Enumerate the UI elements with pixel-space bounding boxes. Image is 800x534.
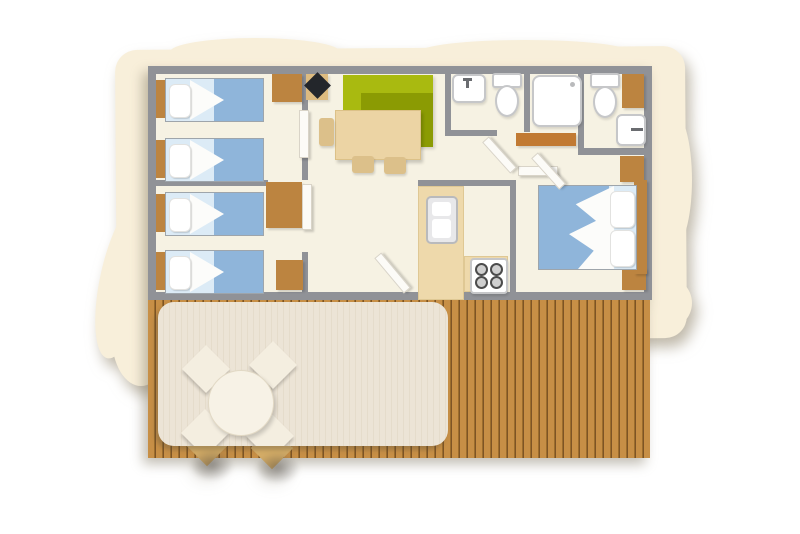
door-leaf-entrance [374,252,410,293]
single-bed-4 [165,250,264,294]
faucet-icon [463,78,472,81]
bed-pillow [169,144,191,178]
single-bed-1-headboard [156,80,165,118]
door-leaf-bathroom [482,136,517,173]
wall-wc-bottom [578,148,644,155]
shower-head-icon [570,82,575,87]
bed-pillow [169,256,191,290]
wall-corridor-mid [302,158,308,180]
hob [470,258,508,294]
mobile-home-unit [148,66,652,300]
single-bed-2-headboard [156,140,165,178]
wardrobe-master-top [620,156,644,182]
single-bed-1 [165,78,264,122]
single-bed-2 [165,138,264,182]
burner-icon [475,263,488,276]
burner-icon [490,263,503,276]
bed-pillow [610,230,635,267]
wall-bathroom-left [445,74,451,136]
building [0,0,800,534]
chair-shadow-right [249,447,307,489]
bed-pillow [610,191,635,228]
shower [532,75,582,127]
terrace-awning [158,302,448,446]
fridge [426,196,458,244]
dining-chair-left [319,118,334,146]
washbasin-bathroom [452,74,486,103]
cabinet-wc [622,74,644,108]
bathroom-bench [516,133,576,146]
washbasin-wc [616,114,646,146]
single-bed-3 [165,192,264,236]
dining-table [335,110,421,160]
fridge-bottom-door [432,219,451,238]
faucet-icon [631,128,643,131]
double-bed [538,185,637,270]
single-bed-3-headboard [156,194,165,232]
wardrobe-bedroom-back [266,182,302,228]
wall-bathroom-bottom [445,130,497,136]
wardrobe-bedroom-front [272,74,302,102]
wall-left [148,66,156,300]
wall-kitchen-bedroom [510,186,516,292]
burner-icon [490,276,503,289]
wall-shower-left [524,74,530,132]
bed-pillow [169,84,191,118]
floorplan-scene [0,0,800,534]
patio-round-table [208,370,274,436]
terrace-decking [148,300,650,458]
door-leaf-bedroom-front [299,110,309,158]
toilet-bathroom-bowl [495,85,519,117]
single-bed-4-headboard [156,252,165,290]
wall-top [148,66,652,74]
dining-chair-bottom-1 [352,156,374,173]
burner-icon [475,276,488,289]
cabinet-bedroom-back [276,260,303,290]
chair-shadow-left [183,444,241,486]
bed-pillow [169,198,191,232]
dining-chair-bottom-2 [384,157,406,174]
toilet-wc-bowl [593,86,617,118]
fridge-top-door [432,202,451,216]
door-leaf-bedroom-back [302,184,312,230]
